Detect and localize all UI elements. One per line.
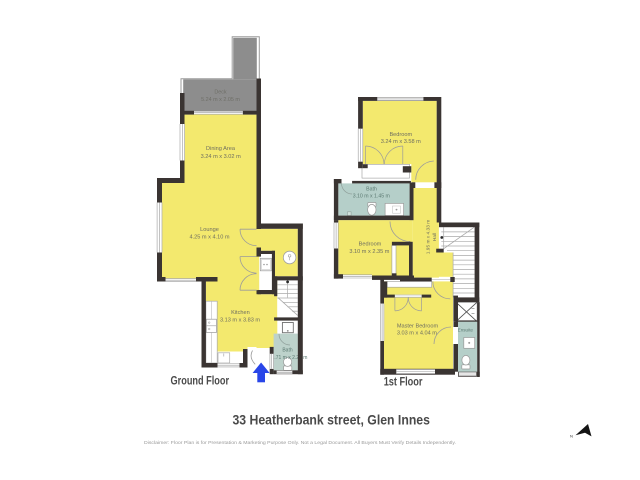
svg-text:4.25 m x 4.10 m: 4.25 m x 4.10 m (189, 234, 229, 240)
svg-text:Bedroom: Bedroom (359, 242, 382, 248)
svg-text:Lounge: Lounge (200, 227, 219, 233)
svg-text:N: N (570, 434, 573, 439)
svg-text:3.24 m x 3.58 m: 3.24 m x 3.58 m (381, 139, 421, 145)
svg-text:Bedroom: Bedroom (389, 132, 412, 138)
svg-text:3.24 m x 3.02 m: 3.24 m x 3.02 m (201, 154, 241, 160)
svg-text:Hall: Hall (432, 233, 438, 241)
svg-text:Kitchen: Kitchen (231, 310, 250, 316)
svg-text:Bath: Bath (366, 187, 377, 193)
svg-text:Disclaimer: Floor Plan is for: Disclaimer: Floor Plan is for Presentati… (144, 440, 456, 446)
svg-text:3.10 m x 2.35 m: 3.10 m x 2.35 m (349, 249, 389, 255)
svg-text:1st Floor: 1st Floor (384, 374, 423, 388)
svg-text:Deck: Deck (214, 90, 227, 96)
svg-text:Master Bedroom: Master Bedroom (397, 323, 439, 329)
svg-text:33 Heatherbank street, Glen In: 33 Heatherbank street, Glen Innes (232, 413, 430, 428)
svg-text:Bath: Bath (282, 348, 293, 354)
svg-text:3.10 m x 1.45 m: 3.10 m x 1.45 m (353, 194, 390, 200)
svg-text:3.13 m x 3.83 m: 3.13 m x 3.83 m (220, 317, 260, 323)
svg-text:5.24 m x 2.05 m: 5.24 m x 2.05 m (201, 97, 240, 103)
svg-text:3.03 m x 4.04 m: 3.03 m x 4.04 m (397, 330, 437, 336)
svg-text:Ground Floor: Ground Floor (171, 373, 230, 387)
svg-text:1.95 m x 4.33 m: 1.95 m x 4.33 m (426, 220, 432, 254)
svg-text:Dining Area: Dining Area (206, 146, 236, 152)
svg-text:Ensuite: Ensuite (458, 327, 474, 332)
